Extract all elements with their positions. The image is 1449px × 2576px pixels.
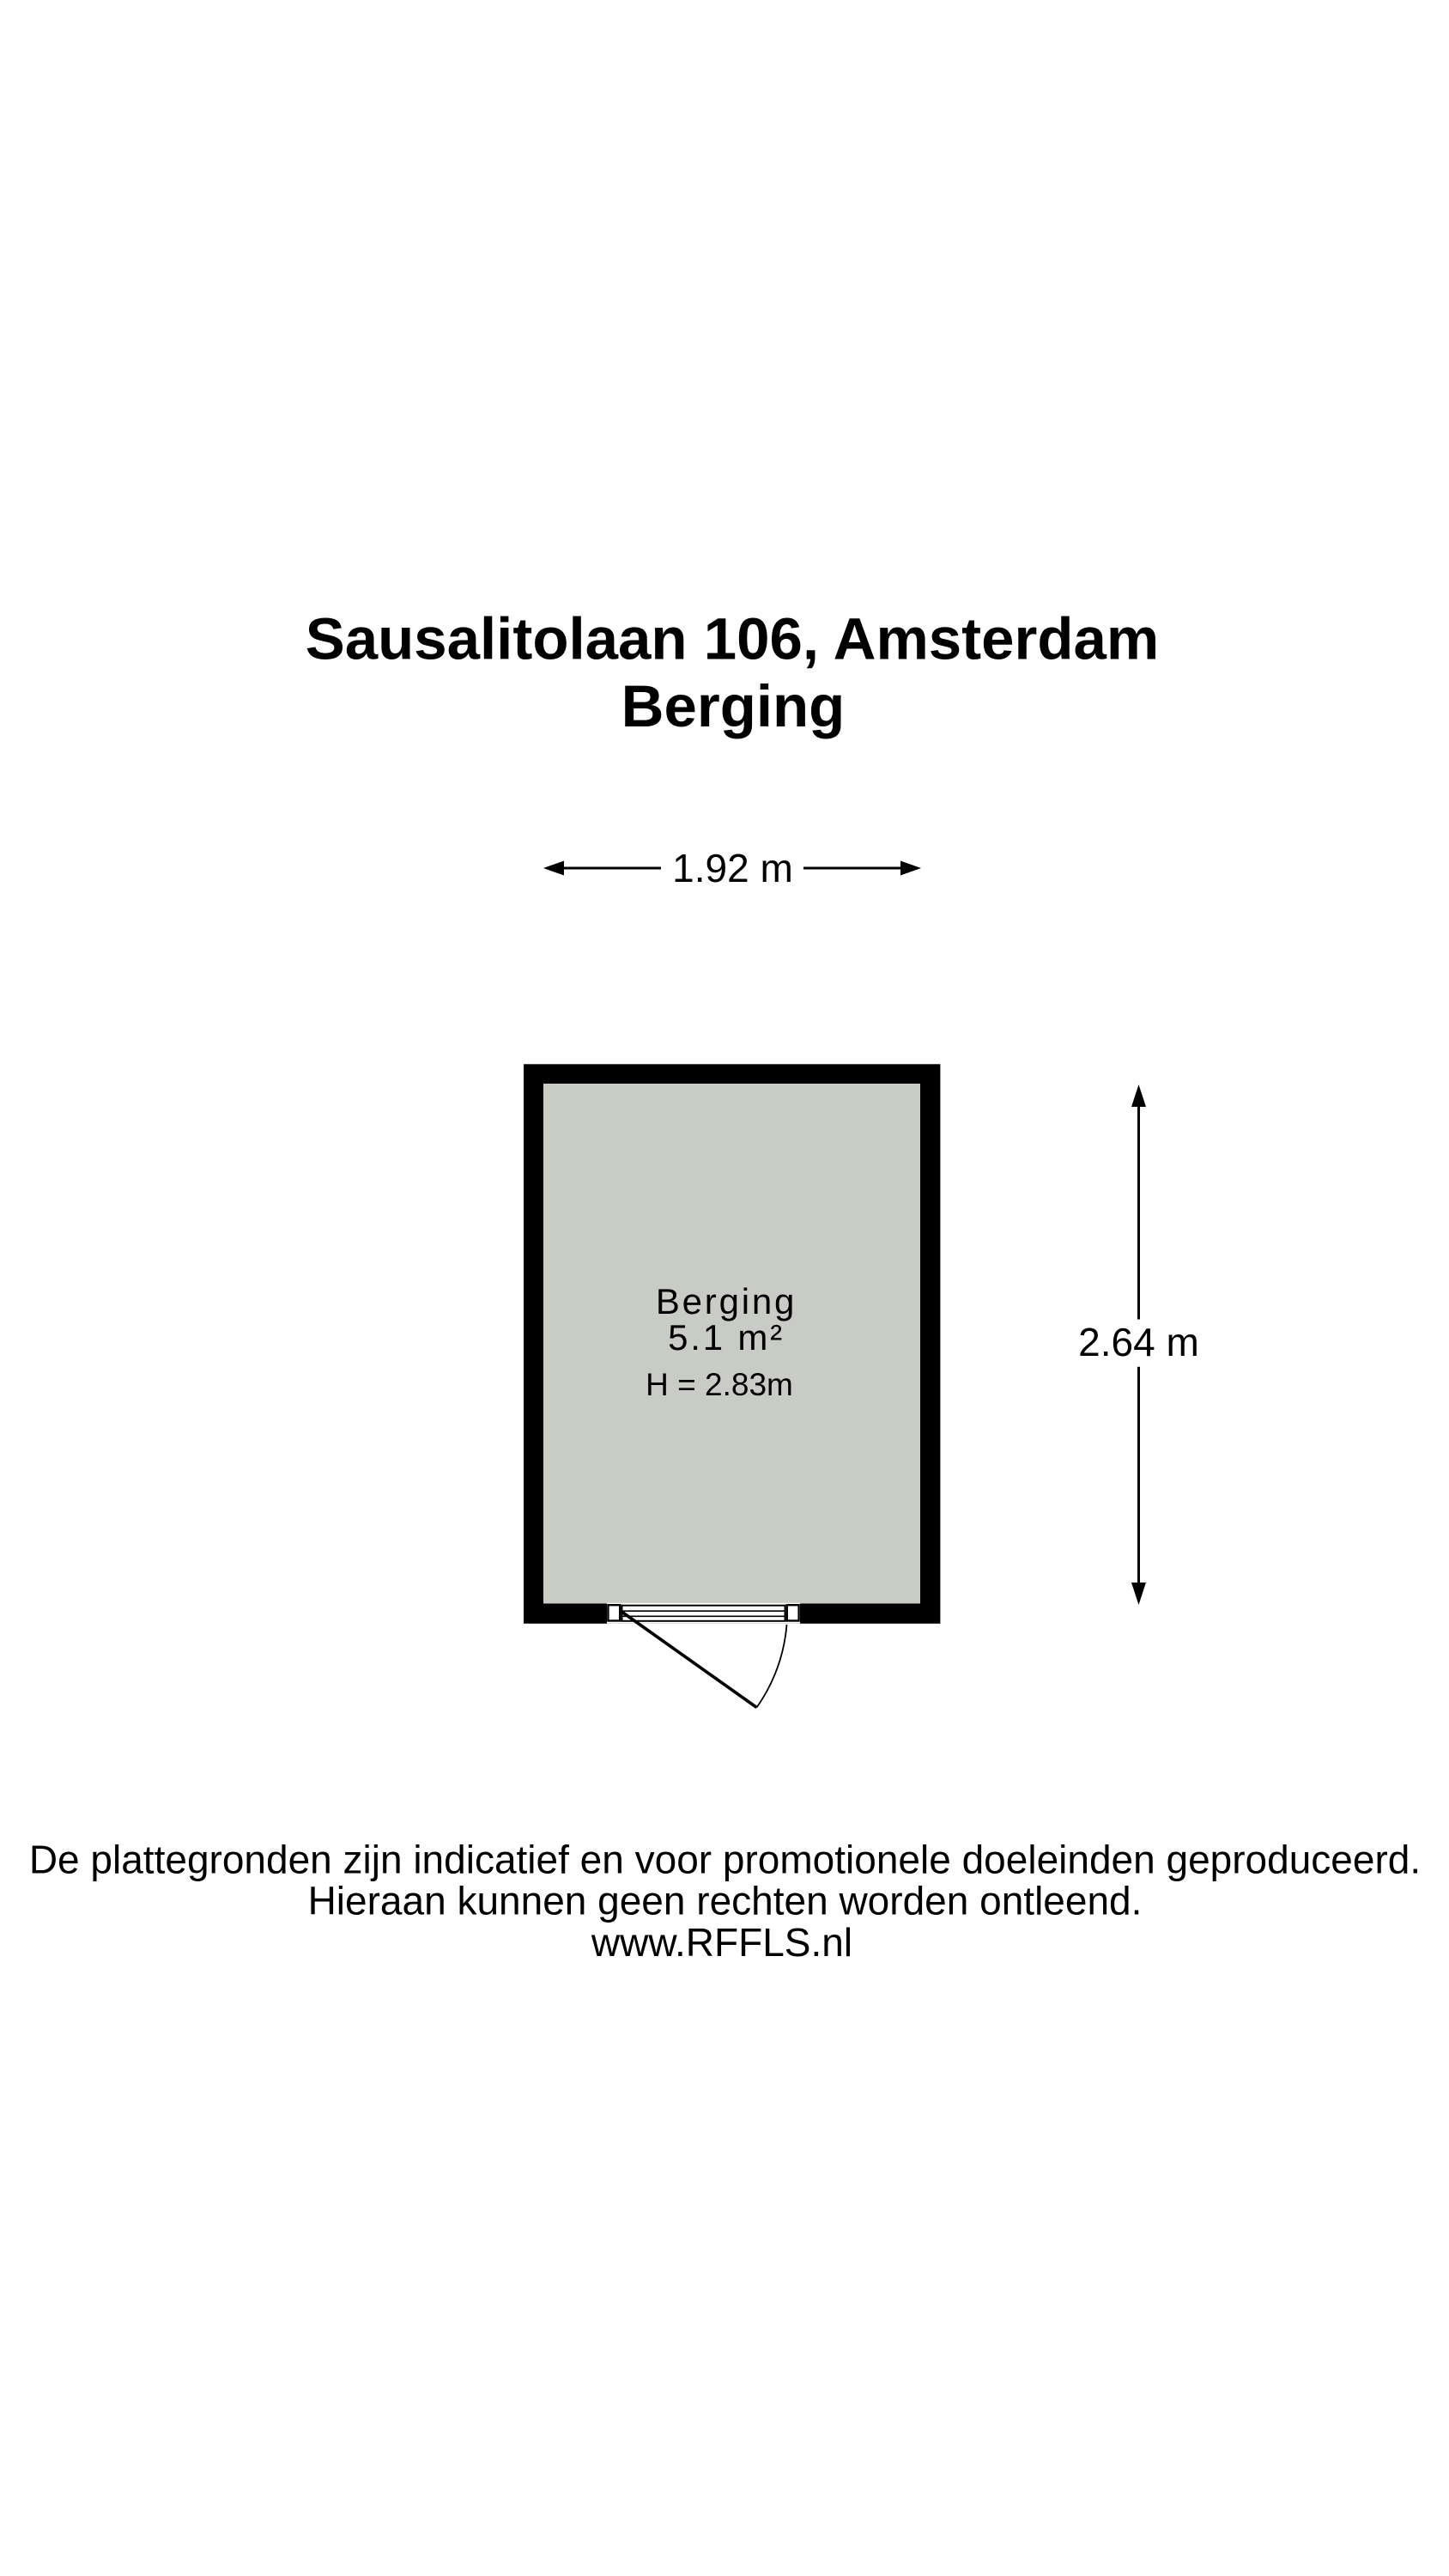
svg-text:2.64 m: 2.64 m [1078,1320,1199,1364]
svg-text:Berging: Berging [621,673,846,739]
svg-text:Hieraan kunnen geen rechten wo: Hieraan kunnen geen rechten worden ontle… [308,1879,1143,1923]
svg-text:Berging: Berging [656,1281,797,1321]
svg-text:Sausalitolaan 106, Amsterdam: Sausalitolaan 106, Amsterdam [306,606,1160,672]
svg-text:5.1 m²: 5.1 m² [668,1317,785,1358]
svg-text:www.RFFLS.nl: www.RFFLS.nl [591,1920,852,1965]
svg-text:H = 2.83m: H = 2.83m [646,1367,793,1402]
svg-text:1.92 m: 1.92 m [672,846,793,890]
svg-text:De plattegronden zijn indicati: De plattegronden zijn indicatief en voor… [29,1838,1421,1882]
